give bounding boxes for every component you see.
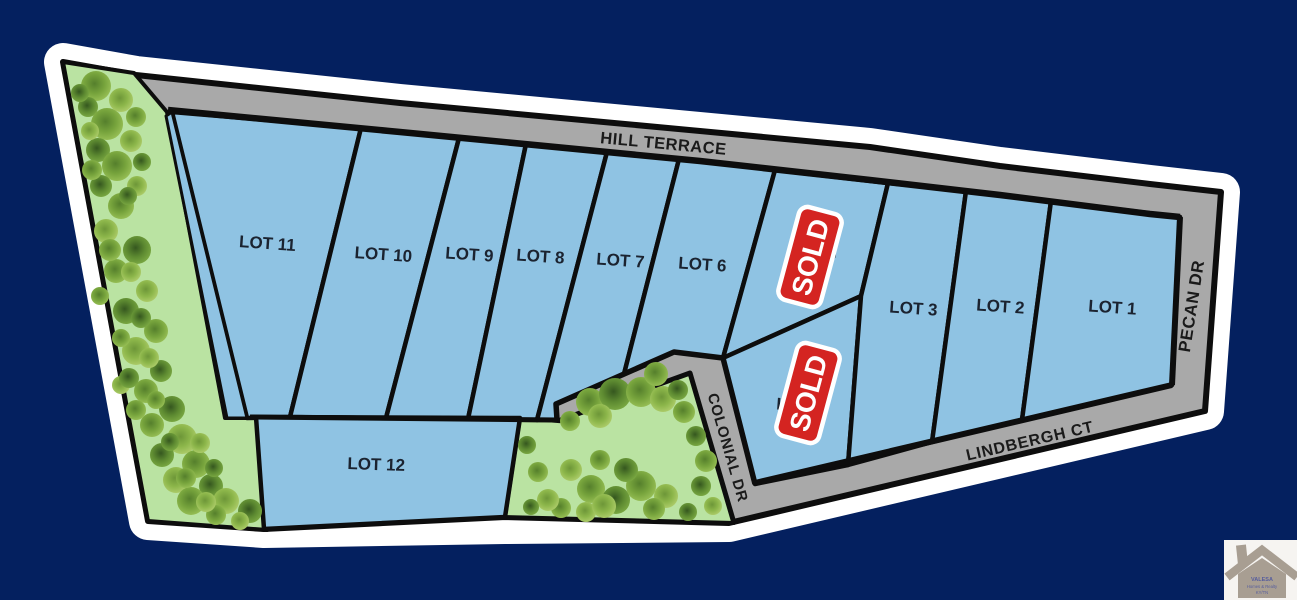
svg-text:LOT 1: LOT 1	[1088, 296, 1137, 318]
svg-text:KY/TN: KY/TN	[1256, 590, 1268, 595]
svg-text:LOT 9: LOT 9	[445, 243, 494, 265]
svg-text:LOT 12: LOT 12	[347, 454, 405, 475]
svg-text:LOT 7: LOT 7	[596, 249, 645, 271]
svg-text:LOT 10: LOT 10	[354, 243, 413, 266]
svg-text:LOT 11: LOT 11	[238, 232, 296, 255]
svg-text:LOT 2: LOT 2	[976, 295, 1025, 317]
svg-text:LOT 8: LOT 8	[516, 245, 565, 267]
svg-text:Homes & Realty: Homes & Realty	[1247, 584, 1278, 589]
svg-text:LOT 3: LOT 3	[889, 297, 938, 319]
svg-text:VALESA: VALESA	[1251, 577, 1273, 583]
svg-text:LOT 6: LOT 6	[678, 253, 727, 275]
